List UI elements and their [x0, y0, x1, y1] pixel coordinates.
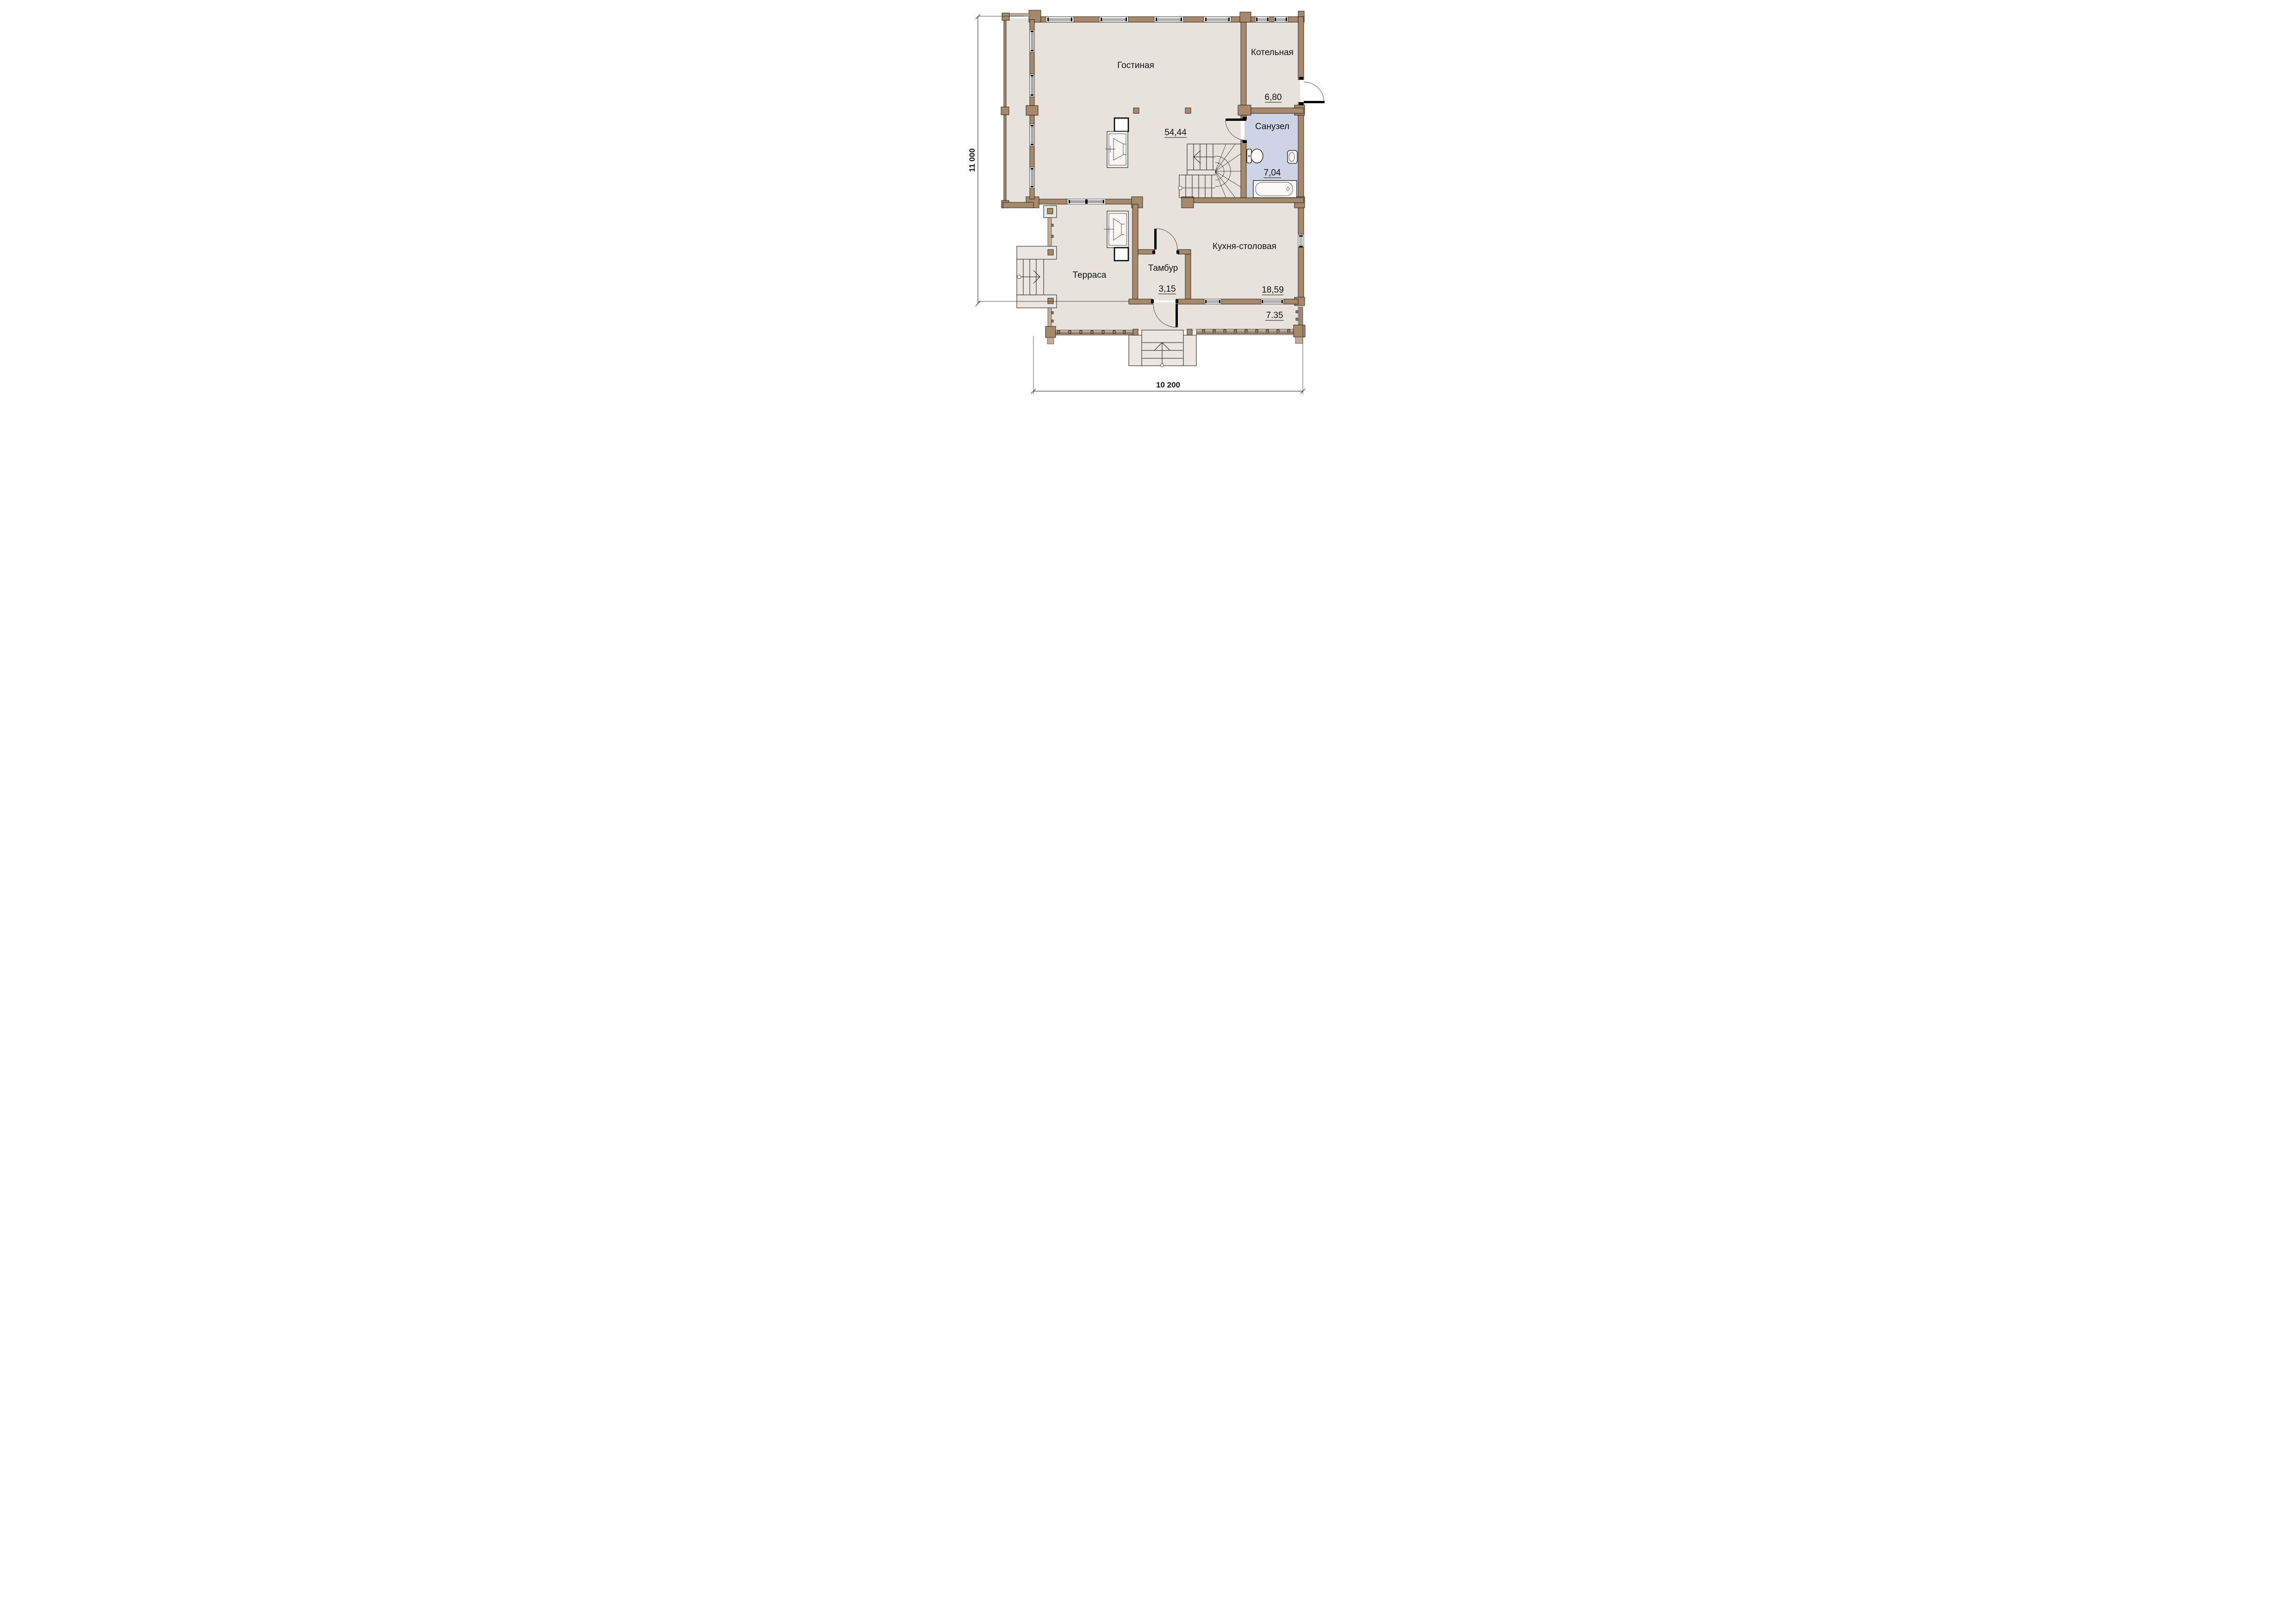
- chimney-icon: [1114, 248, 1128, 261]
- boiler-bath-wall: [1244, 108, 1304, 113]
- entrance-porch: [1129, 330, 1196, 367]
- chimney-icon: [1114, 118, 1128, 131]
- south-wall-a: [1129, 299, 1153, 304]
- kitchen-north-west-pier: [1182, 197, 1194, 208]
- living-boiler-wall: [1241, 22, 1246, 108]
- door-boiler: [1299, 77, 1325, 105]
- terrace-stair-gap-fill: [1044, 259, 1052, 295]
- room-label-terrace: Терраса: [1072, 270, 1106, 280]
- sink-icon: [1288, 150, 1297, 163]
- vestibule-north-wall-b: [1177, 250, 1191, 254]
- veranda-mid-pier: [1026, 106, 1038, 115]
- column-post: [1133, 108, 1139, 113]
- stairs-terrace-west: [1017, 259, 1044, 295]
- column-post: [1185, 108, 1191, 113]
- window-icon: [1030, 74, 1034, 97]
- window-icon: [1099, 17, 1128, 22]
- window-icon: [1261, 299, 1284, 304]
- window-icon: [1154, 17, 1183, 22]
- room-label-living: Гостиная: [1117, 61, 1154, 70]
- window-icon: [1274, 17, 1288, 22]
- south-wall-c: [1221, 299, 1261, 304]
- room-area-terrace: 7.35: [1266, 311, 1283, 320]
- window-icon: [1030, 167, 1034, 188]
- east-wall-boiler-upper: [1298, 17, 1304, 80]
- toilet-icon: [1247, 149, 1263, 163]
- floor-plan-drawing: 11 000 10 200 Гостиная 54,44 Котельная 6…: [861, 0, 1435, 406]
- room-area-boiler: 6,80: [1264, 93, 1282, 102]
- window-icon: [1030, 30, 1034, 52]
- east-wall-kitchen-lower: [1298, 247, 1304, 306]
- room-area-vestibule: 3,15: [1158, 284, 1176, 294]
- veranda-south-wall: [1003, 202, 1033, 208]
- east-wall-bath: [1298, 102, 1304, 202]
- vestibule-east-wall: [1185, 254, 1191, 299]
- floor-plan-page: 11 000 10 200 Гостиная 54,44 Котельная 6…: [861, 0, 1435, 406]
- room-area-living: 54,44: [1164, 128, 1187, 137]
- north-mid-pier: [1240, 12, 1251, 22]
- room-label-vestibule: Тамбур: [1148, 263, 1178, 273]
- window-icon: [1030, 124, 1034, 146]
- porch-start-mark: [1160, 364, 1164, 367]
- window-icon: [1255, 17, 1269, 22]
- window-icon: [1204, 17, 1231, 22]
- room-label-boiler: Котельная: [1251, 48, 1294, 57]
- vestibule-north-wall-a: [1138, 250, 1155, 254]
- dimension-width-label: 10 200: [1156, 381, 1180, 389]
- south-wall-d: [1284, 299, 1298, 304]
- dimension-height-label: 11 000: [968, 148, 977, 172]
- room-area-kitchen: 18,59: [1262, 285, 1284, 295]
- room-label-bathroom: Санузел: [1255, 122, 1289, 131]
- room-area-bathroom: 7,04: [1263, 168, 1281, 178]
- terrace-vestibule-wall: [1132, 204, 1138, 304]
- bathtub-icon: [1253, 181, 1297, 198]
- south-wall-b: [1176, 299, 1204, 304]
- stairs-start-mark: [1178, 186, 1182, 190]
- living-bath-pier: [1238, 105, 1251, 115]
- veranda-nw-post: [1002, 13, 1009, 20]
- window-icon: [1067, 199, 1106, 204]
- window-icon: [1298, 234, 1304, 247]
- bath-west-wall-b: [1241, 140, 1246, 198]
- window-icon: [1204, 299, 1221, 304]
- kitchen-north-wall: [1182, 198, 1304, 203]
- veranda-north-rail: [1009, 13, 1030, 16]
- veranda-w-post: [1001, 107, 1009, 115]
- room-label-kitchen: Кухня-столовая: [1213, 242, 1276, 251]
- window-icon: [1046, 17, 1074, 22]
